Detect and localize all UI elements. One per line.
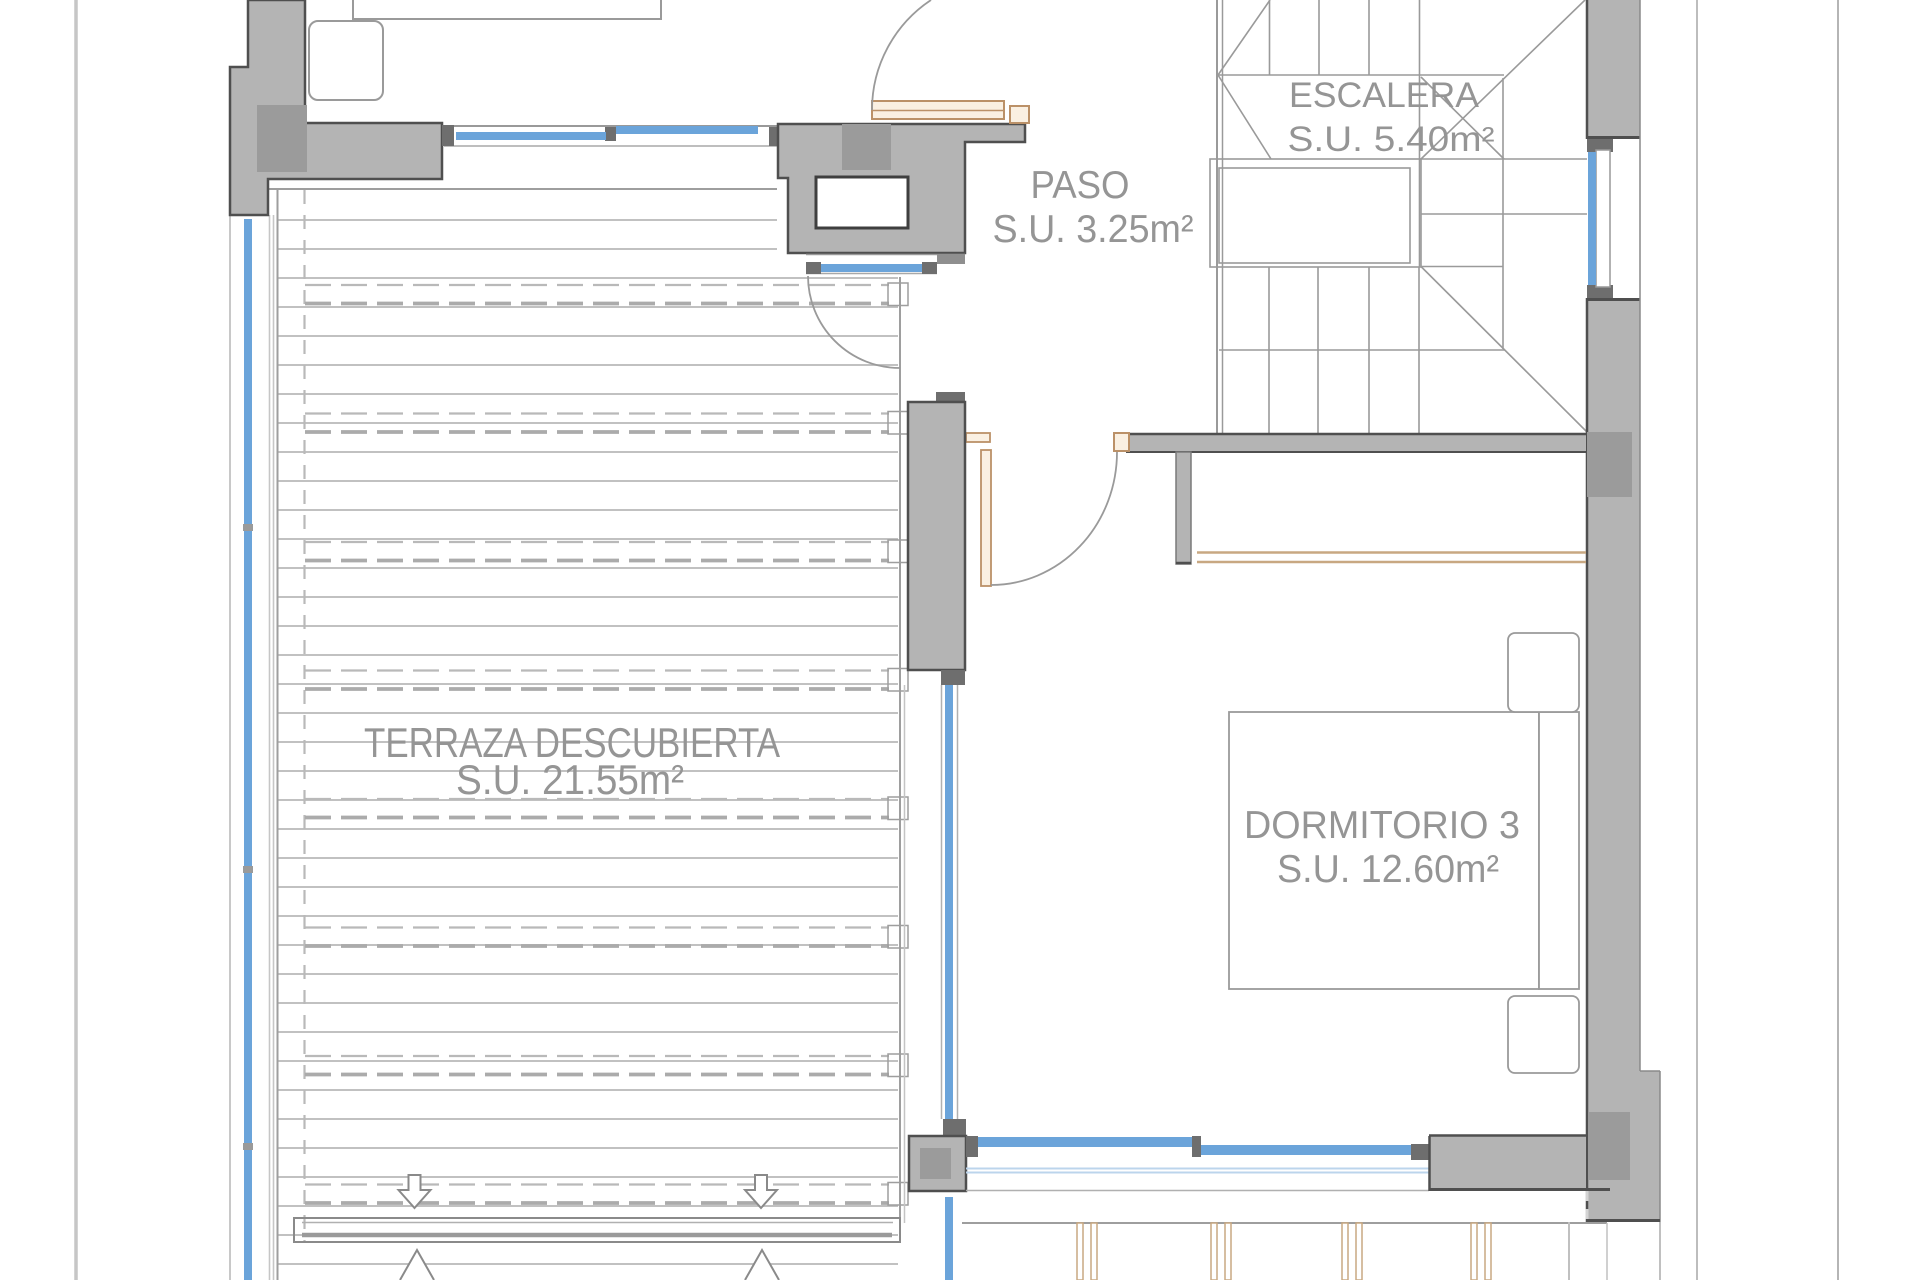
svg-text:S.U. 12.60m²: S.U. 12.60m²	[1277, 848, 1499, 891]
svg-text:PASO: PASO	[1031, 164, 1130, 207]
svg-text:ESCALERA: ESCALERA	[1289, 76, 1480, 115]
svg-text:DORMITORIO 3: DORMITORIO 3	[1244, 804, 1520, 847]
svg-text:S.U. 21.55m²: S.U. 21.55m²	[456, 756, 684, 803]
svg-text:S.U. 5.40m²: S.U. 5.40m²	[1288, 120, 1495, 159]
svg-text:S.U. 3.25m²: S.U. 3.25m²	[993, 208, 1194, 251]
